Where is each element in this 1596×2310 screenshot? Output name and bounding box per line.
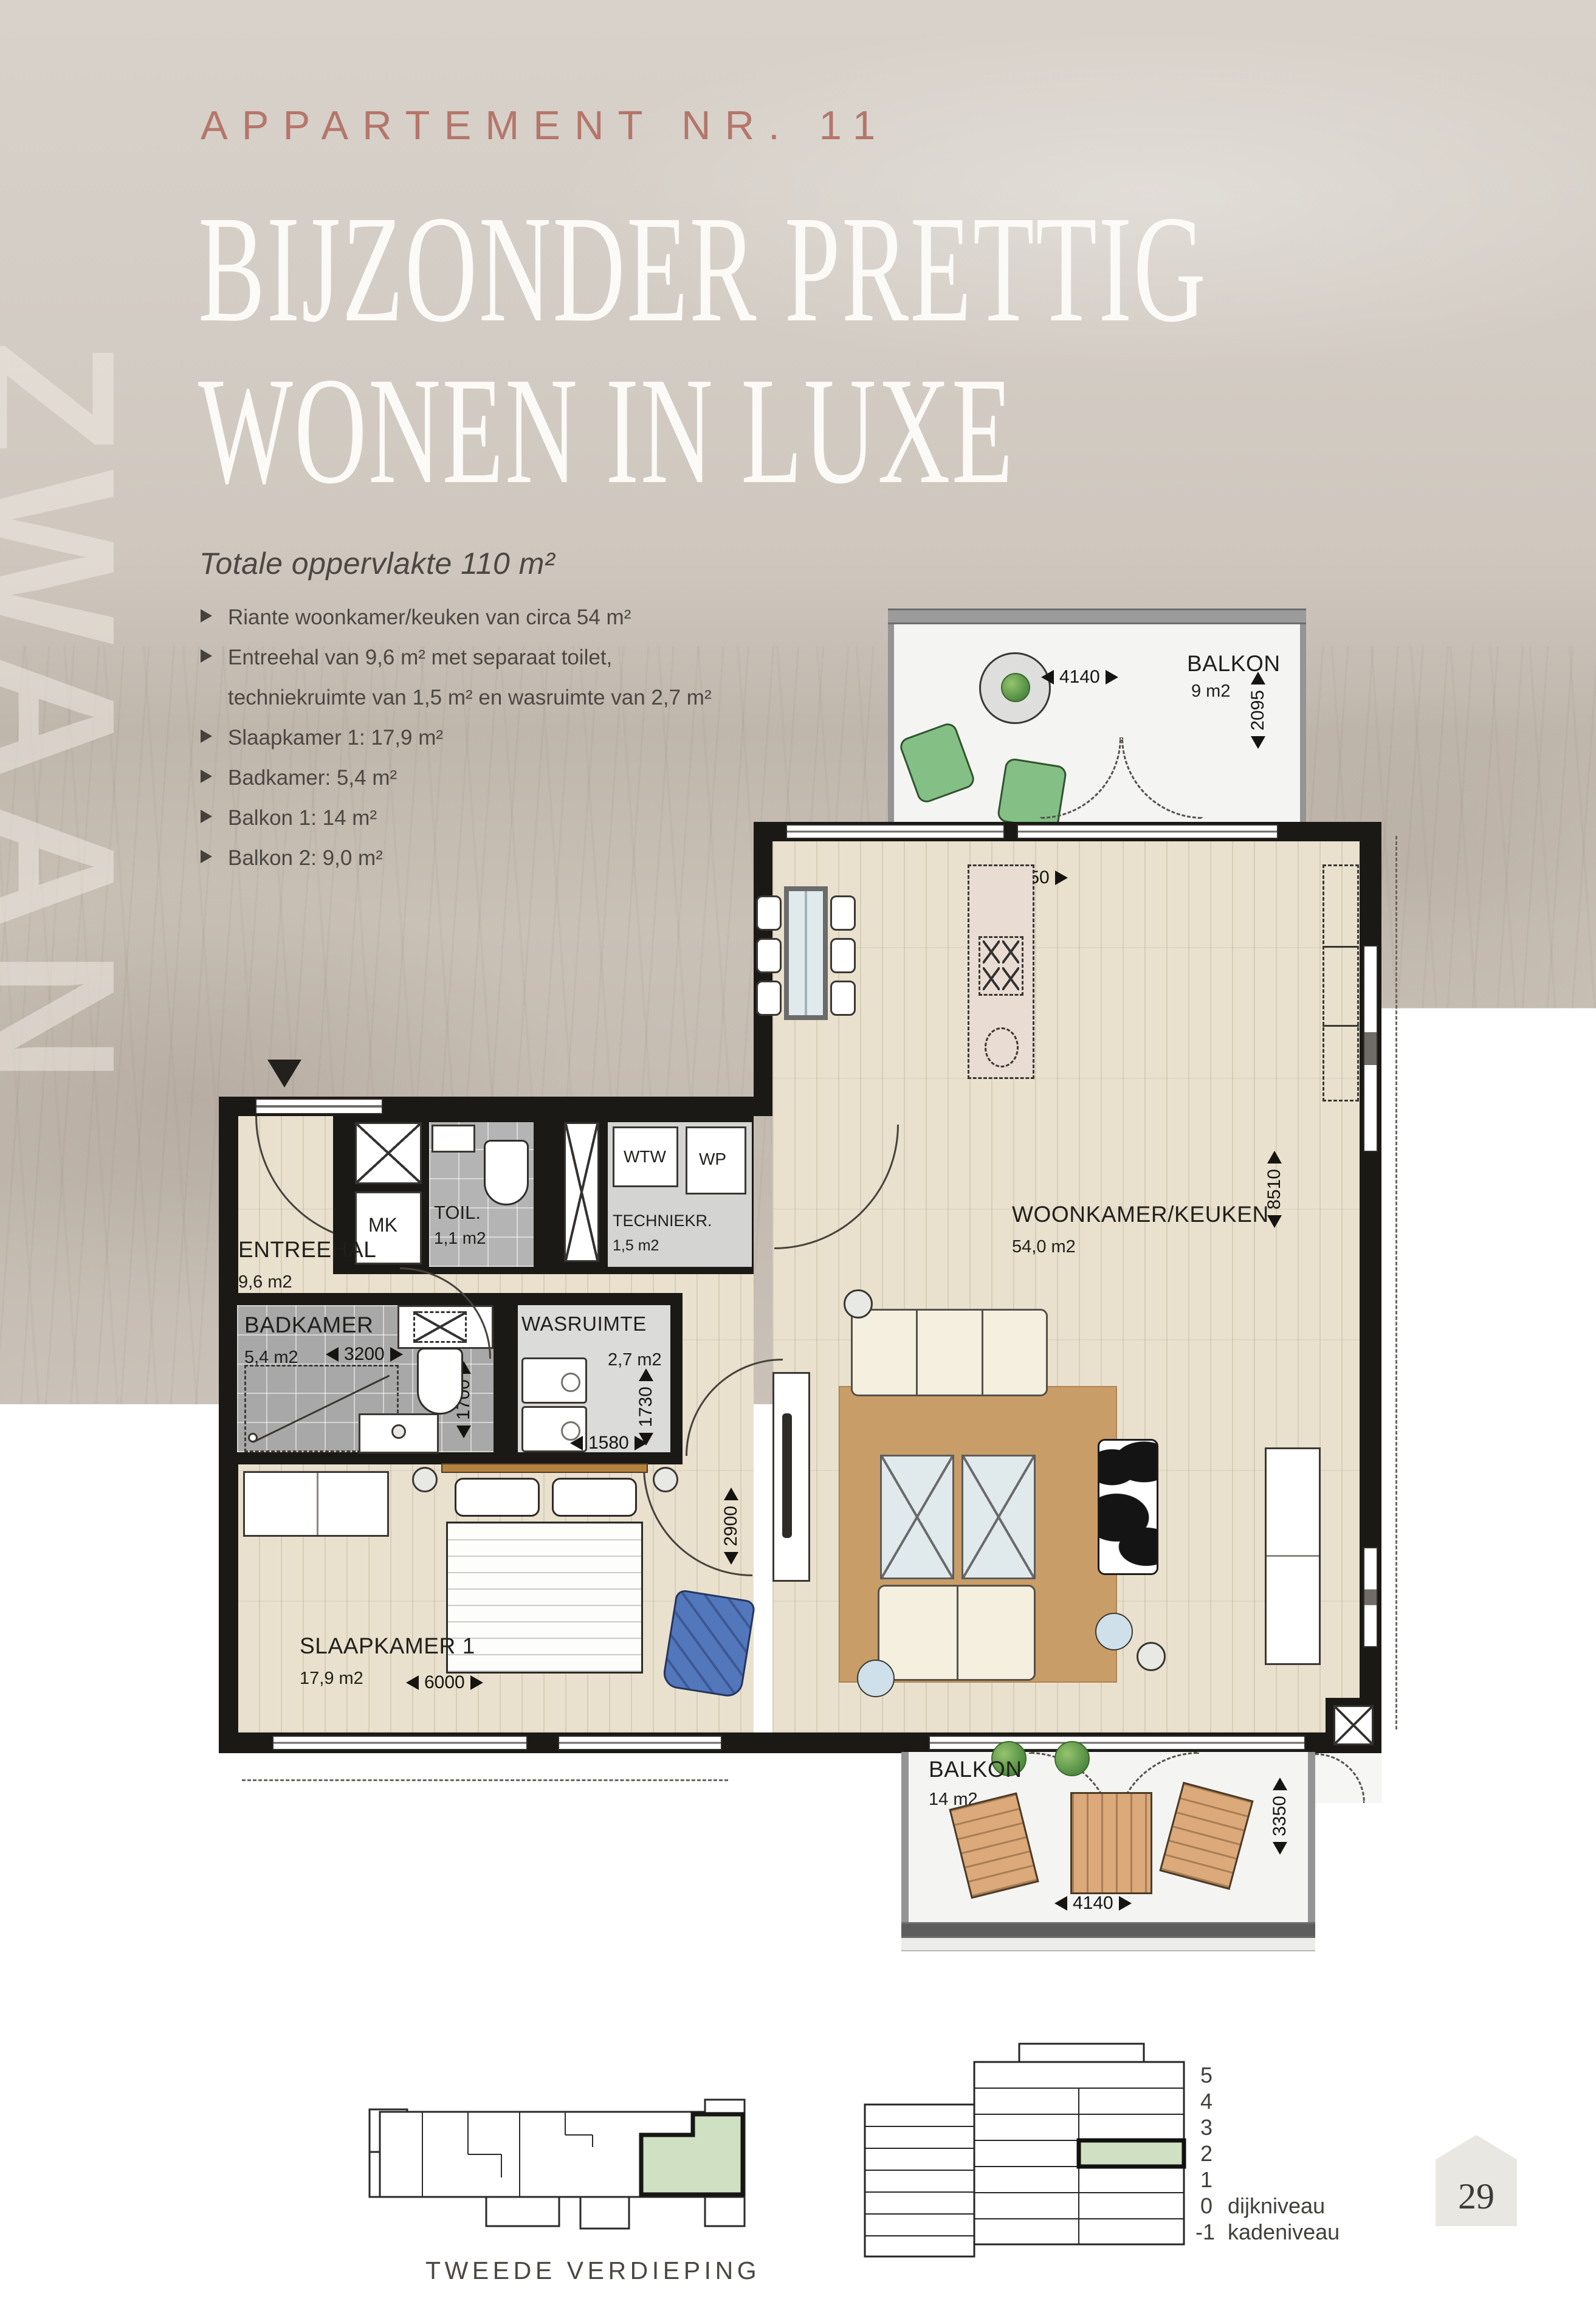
dim-arrow-left-icon bbox=[1054, 1896, 1067, 1911]
dim-arrow-left-icon bbox=[326, 1347, 339, 1362]
dim-slaapkamer-width: 6000 bbox=[406, 1672, 483, 1693]
dim-arrow-up-icon bbox=[1251, 672, 1265, 684]
toilet-label: TOIL. bbox=[434, 1202, 481, 1224]
balkon-top: 4140 BALKON 9 m2 2095 bbox=[888, 609, 1306, 822]
property-line-east bbox=[1395, 836, 1397, 1729]
balkon-top-rail-right bbox=[1300, 624, 1306, 822]
siteplan-balcony bbox=[486, 2197, 559, 2226]
toilet-area: 1,1 m2 bbox=[434, 1229, 486, 1248]
dining-chair bbox=[830, 981, 856, 1016]
toilet-sink bbox=[432, 1125, 475, 1153]
dim-balkon-bottom-width: 4140 bbox=[1054, 1893, 1132, 1914]
wtw-label: WTW bbox=[624, 1147, 666, 1167]
dim-arrow-left-icon bbox=[1041, 670, 1054, 684]
page-title-line2: WONEN IN LUXE bbox=[198, 350, 1208, 511]
slaapkamer-label: SLAAPKAMER 1 bbox=[300, 1633, 475, 1659]
mk-label: MK bbox=[368, 1214, 397, 1236]
property-line-south bbox=[242, 1779, 728, 1781]
burner-icon bbox=[1002, 967, 1019, 990]
wasruimte-area: 2,7 m2 bbox=[608, 1350, 662, 1370]
table-plant bbox=[1001, 673, 1030, 702]
slaapkamer-window bbox=[558, 1736, 722, 1750]
techniek-area: 1,5 m2 bbox=[613, 1237, 659, 1255]
dim-arrow-left-icon bbox=[570, 1436, 583, 1450]
balkon-bottom: BALKON 14 m2 4140 3350 bbox=[901, 1752, 1315, 1950]
tv-screen bbox=[782, 1413, 792, 1538]
siteplan-diagram bbox=[365, 2098, 760, 2250]
section-penthouse bbox=[1019, 2044, 1144, 2062]
siteplan-balcony bbox=[705, 2197, 745, 2226]
dim-arrow-down-icon bbox=[724, 1552, 738, 1565]
dim-arrow-down-icon bbox=[1251, 736, 1265, 749]
balkon-sliding-door-south bbox=[929, 1736, 1305, 1750]
woonkamer-east-window bbox=[1363, 945, 1378, 1152]
level-num: 3 bbox=[1200, 2115, 1212, 2140]
dining-chair bbox=[756, 981, 782, 1016]
dim-wasruimte-width: 1580 bbox=[570, 1433, 647, 1453]
level-word: kadeniveau bbox=[1228, 2219, 1340, 2244]
side-table bbox=[857, 1660, 895, 1697]
total-area-title: Totale oppervlakte 110 m² bbox=[199, 546, 838, 581]
page-title-line1: BIJZONDER PRETTIG bbox=[198, 188, 1208, 350]
dim-arrow-down-icon bbox=[1273, 1842, 1287, 1855]
balkon-bottom-walkway bbox=[901, 1938, 1315, 1951]
floor-lamp bbox=[1137, 1642, 1166, 1671]
washing-machine bbox=[521, 1357, 587, 1404]
shaft bbox=[355, 1122, 422, 1184]
burner-icon bbox=[983, 940, 1000, 964]
shower-drain bbox=[248, 1433, 258, 1443]
dim-balkon-bottom-depth: 3350 bbox=[1270, 1777, 1290, 1855]
dim-badkamer-width: 3200 bbox=[326, 1344, 403, 1365]
level-num: 2 bbox=[1200, 2141, 1212, 2166]
island-sink bbox=[985, 1027, 1019, 1067]
bullet-triangle-icon bbox=[201, 810, 212, 823]
balkon-top-railing bbox=[888, 609, 1306, 624]
shaft bbox=[564, 1122, 599, 1262]
bedroom-armchair bbox=[661, 1589, 756, 1699]
balkon-bottom-rail-left bbox=[901, 1752, 909, 1922]
wasruimte-label: WASRUIMTE bbox=[521, 1312, 647, 1336]
dim-arrow-up-icon bbox=[1267, 1151, 1282, 1164]
bed-duvet bbox=[446, 1522, 643, 1674]
bullet-triangle-icon bbox=[201, 850, 212, 863]
balcony-sliding-door bbox=[1017, 824, 1278, 839]
siteplan-balcony bbox=[580, 2197, 629, 2229]
watermark-text: ZWAAN bbox=[0, 340, 143, 1099]
woonkamer-area: 54,0 m2 bbox=[1012, 1237, 1076, 1257]
dim-slaapkamer-depth: 2900 bbox=[721, 1488, 741, 1565]
floor-plan: 4140 BALKON 9 m2 2095 bbox=[218, 605, 1382, 1970]
corner-shaft bbox=[1333, 1705, 1374, 1745]
slaapkamer-window bbox=[272, 1736, 528, 1750]
page-number: 29 bbox=[1458, 2176, 1495, 2226]
machine-door-icon bbox=[561, 1373, 580, 1392]
floor-lamp bbox=[844, 1289, 873, 1319]
entry-door-gap bbox=[255, 1098, 383, 1114]
dining-chair bbox=[756, 895, 782, 931]
balkon-bottom-railing bbox=[901, 1922, 1315, 1938]
section-low-block bbox=[865, 2105, 974, 2257]
badkamer-label: BADKAMER bbox=[244, 1312, 373, 1338]
bed-headboard bbox=[441, 1463, 648, 1473]
level-num: 0 bbox=[1200, 2193, 1212, 2218]
techniek-label: TECHNIEKR. bbox=[613, 1212, 712, 1230]
bullet-triangle-icon bbox=[201, 729, 212, 743]
bed-pillow bbox=[455, 1478, 540, 1517]
section-diagram: 5 4 3 2 1 0 -1 dijkniveau kadeniveau bbox=[845, 2038, 1343, 2264]
cooktop bbox=[979, 936, 1023, 996]
dining-chair bbox=[830, 938, 856, 973]
bullet-triangle-icon bbox=[201, 770, 212, 783]
level-word: dijkniveau bbox=[1228, 2193, 1325, 2218]
page-title: BIJZONDER PRETTIG WONEN IN LUXE bbox=[198, 188, 1596, 511]
woonkamer-north-window bbox=[786, 824, 1005, 839]
dim-arrow-right-icon bbox=[1055, 871, 1068, 885]
dining-chair bbox=[756, 938, 782, 973]
dining-table bbox=[784, 886, 828, 1020]
level-num: 1 bbox=[1200, 2167, 1212, 2192]
dim-arrow-down-icon bbox=[1267, 1215, 1282, 1228]
dim-arrow-up-icon bbox=[1273, 1777, 1287, 1790]
dim-balkon-top-depth: 2095 bbox=[1248, 672, 1268, 749]
dim-arrow-right-icon bbox=[635, 1436, 647, 1450]
planter bbox=[1054, 1741, 1090, 1776]
cowhide-chaise bbox=[1098, 1439, 1158, 1575]
dining-chair bbox=[830, 895, 856, 931]
side-table bbox=[1095, 1613, 1133, 1650]
dim-arrow-up-icon bbox=[724, 1488, 738, 1500]
balkon-bottom-label: BALKON bbox=[929, 1757, 1022, 1782]
wp-label: WP bbox=[699, 1150, 726, 1169]
bedside-lamp bbox=[412, 1467, 438, 1492]
dim-arrow-right-icon bbox=[1106, 670, 1118, 684]
burner-icon bbox=[1002, 940, 1019, 964]
level-num: 4 bbox=[1200, 2089, 1212, 2114]
dim-arrow-right-icon bbox=[1119, 1896, 1132, 1911]
section-highlighted-floor bbox=[1079, 2140, 1184, 2167]
level-num: 5 bbox=[1200, 2063, 1212, 2088]
dim-balkon-top-width: 4140 bbox=[1041, 667, 1118, 688]
siteplan-label: TWEEDE VERDIEPING bbox=[425, 2257, 754, 2285]
dim-arrow-right-icon bbox=[470, 1675, 483, 1690]
slaapkamer-area: 17,9 m2 bbox=[300, 1669, 363, 1689]
level-num: -1 bbox=[1195, 2219, 1215, 2244]
dim-arrow-left-icon bbox=[406, 1675, 419, 1690]
wardrobe bbox=[243, 1471, 389, 1537]
entreehal-area: 9,6 m2 bbox=[238, 1272, 292, 1292]
coffee-table bbox=[880, 1455, 954, 1579]
entrance-arrow-icon bbox=[267, 1060, 301, 1088]
sofa-two-seat bbox=[878, 1585, 1036, 1681]
kitchen-counter bbox=[1323, 864, 1359, 1102]
dim-arrow-down-icon bbox=[456, 1426, 471, 1438]
bed-pillow bbox=[552, 1478, 637, 1517]
page-number-badge: 29 bbox=[1436, 2135, 1517, 2226]
brochure-page: ZWAAN APPARTEMENT NR. 11 BIJZONDER PRETT… bbox=[0, 0, 1596, 2310]
balkon-top-rail-left bbox=[888, 624, 894, 822]
bullet-triangle-icon bbox=[201, 649, 212, 663]
burner-icon bbox=[983, 967, 1000, 990]
sink-faucet bbox=[391, 1424, 406, 1439]
kitchen-tall-cabinet bbox=[1265, 1447, 1321, 1665]
entreehal-label: ENTREEHAL bbox=[238, 1237, 376, 1263]
toilet-bowl bbox=[484, 1140, 529, 1205]
balkon-top-area: 9 m2 bbox=[1191, 681, 1230, 702]
apartment-number-heading: APPARTEMENT NR. 11 bbox=[201, 102, 889, 149]
bedside-lamp bbox=[653, 1467, 678, 1492]
woonkamer-label: WOONKAMER/KEUKEN bbox=[1012, 1202, 1269, 1227]
dim-arrow-up-icon bbox=[639, 1368, 653, 1381]
bullet-triangle-icon bbox=[201, 609, 212, 622]
balkon-bottom-rail-right bbox=[1308, 1752, 1315, 1922]
woonkamer-east-door bbox=[1363, 1547, 1378, 1647]
coffee-table bbox=[961, 1455, 1036, 1579]
dim-woonkamer-depth: 8510 bbox=[1264, 1151, 1285, 1228]
sofa-three-seat bbox=[851, 1309, 1048, 1396]
wood-table bbox=[1070, 1792, 1152, 1894]
